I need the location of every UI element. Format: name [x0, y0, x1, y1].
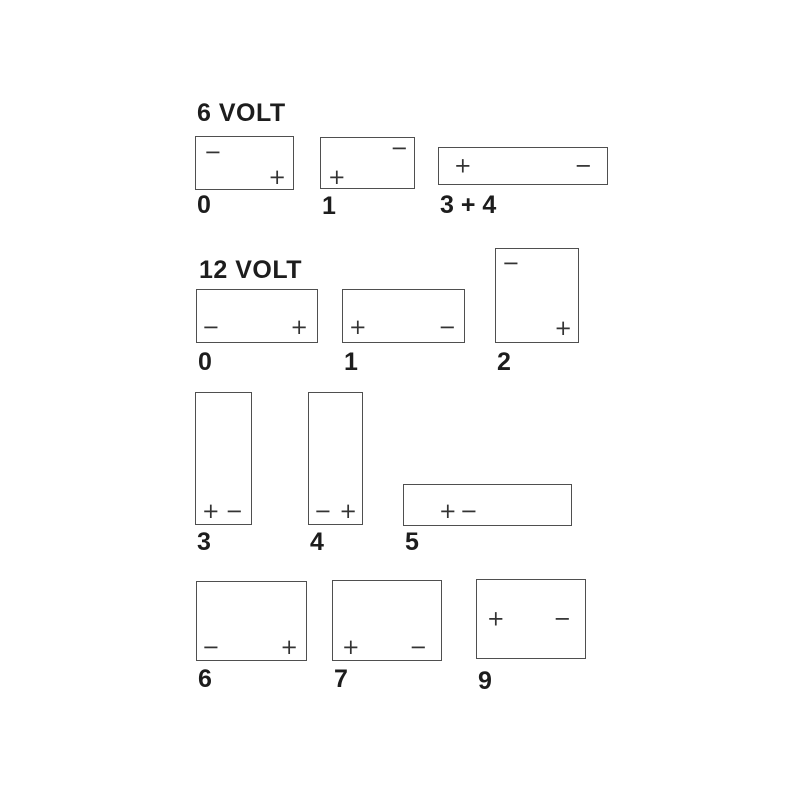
negative-terminal: −	[502, 253, 520, 274]
battery-12v-type-2: − + 2	[495, 248, 579, 343]
battery-12v-type-9: + − 9	[476, 579, 586, 659]
battery-type-label: 9	[478, 668, 492, 694]
battery-6v-type-3-4: + − 3 + 4	[438, 147, 608, 185]
positive-terminal: +	[280, 637, 298, 658]
positive-terminal: +	[439, 501, 457, 522]
positive-terminal: +	[328, 167, 346, 188]
positive-terminal: +	[454, 156, 472, 177]
battery-type-label: 1	[322, 193, 336, 219]
battery-type-label: 3 + 4	[440, 192, 496, 218]
battery-type-label: 5	[405, 529, 419, 555]
negative-terminal: −	[438, 317, 456, 338]
battery-type-label: 7	[334, 666, 348, 692]
battery-12v-type-4: − + 4	[308, 392, 363, 525]
battery-type-label: 0	[198, 349, 212, 375]
positive-terminal: +	[202, 501, 220, 522]
battery-type-label: 6	[198, 666, 212, 692]
battery-type-label: 0	[197, 192, 211, 218]
battery-type-label: 3	[197, 529, 211, 555]
positive-terminal: +	[342, 637, 360, 658]
negative-terminal: −	[553, 609, 571, 630]
section-title-6-volt: 6 VOLT	[197, 100, 286, 126]
negative-terminal: −	[460, 501, 478, 522]
negative-terminal: −	[225, 501, 243, 522]
negative-terminal: −	[202, 637, 220, 658]
battery-type-label: 1	[344, 349, 358, 375]
positive-terminal: +	[349, 317, 367, 338]
battery-12v-type-5: + − 5	[403, 484, 572, 526]
negative-terminal: −	[204, 142, 222, 163]
positive-terminal: +	[268, 167, 286, 188]
negative-terminal: −	[390, 138, 408, 159]
battery-layout-diagram: 6 VOLT − + 0 − + 1 + − 3 + 4 12 VOLT − +…	[0, 0, 800, 800]
positive-terminal: +	[554, 318, 572, 339]
positive-terminal: +	[339, 501, 357, 522]
battery-6v-type-1: − + 1	[320, 137, 415, 189]
positive-terminal: +	[487, 609, 505, 630]
battery-12v-type-6: − + 6	[196, 581, 307, 661]
negative-terminal: −	[202, 317, 220, 338]
battery-type-label: 2	[497, 349, 511, 375]
section-title-12-volt: 12 VOLT	[199, 257, 302, 283]
battery-12v-type-3: + − 3	[195, 392, 252, 525]
battery-12v-type-1: + − 1	[342, 289, 465, 343]
positive-terminal: +	[290, 317, 308, 338]
battery-12v-type-0: − + 0	[196, 289, 318, 343]
negative-terminal: −	[314, 501, 332, 522]
battery-12v-type-7: + − 7	[332, 580, 442, 661]
battery-type-label: 4	[310, 529, 324, 555]
negative-terminal: −	[409, 637, 427, 658]
negative-terminal: −	[574, 156, 592, 177]
battery-6v-type-0: − + 0	[195, 136, 294, 190]
